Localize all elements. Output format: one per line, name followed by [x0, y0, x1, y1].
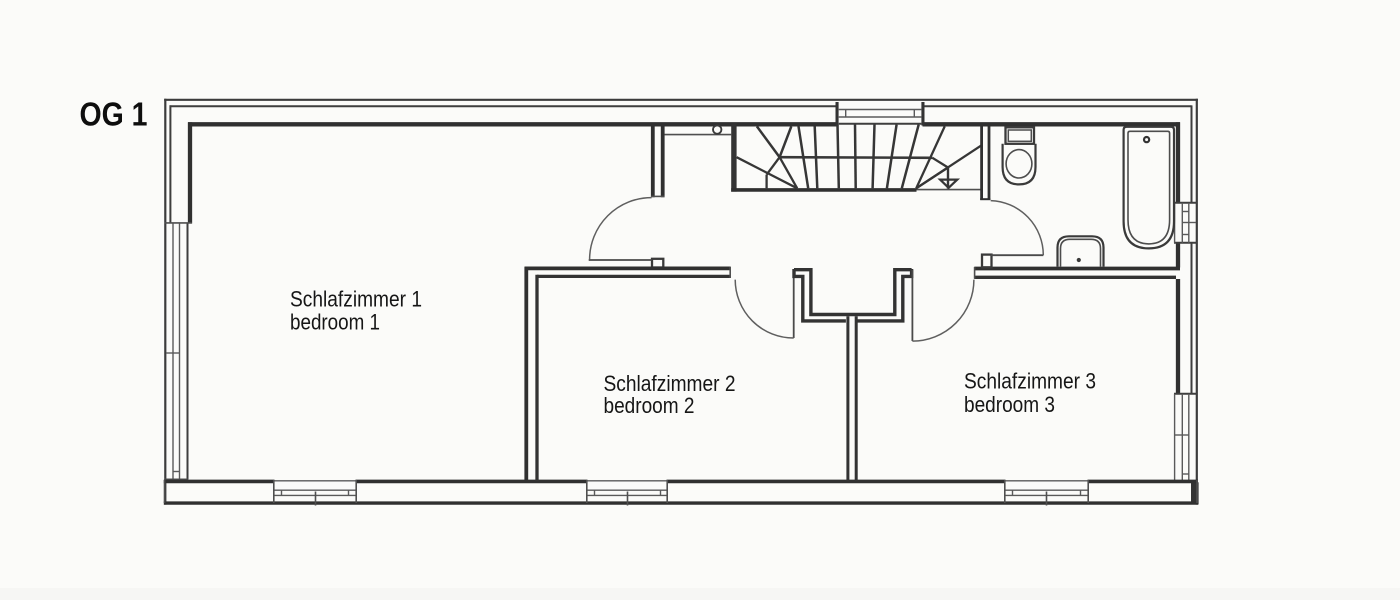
svg-text:Schlafzimmer 1: Schlafzimmer 1 [290, 287, 422, 312]
svg-text:OG 1: OG 1 [80, 96, 148, 133]
svg-text:bedroom 1: bedroom 1 [290, 310, 380, 335]
svg-text:bedroom 3: bedroom 3 [964, 392, 1055, 417]
svg-text:bedroom 2: bedroom 2 [604, 393, 695, 418]
svg-text:Schlafzimmer 3: Schlafzimmer 3 [964, 369, 1096, 394]
